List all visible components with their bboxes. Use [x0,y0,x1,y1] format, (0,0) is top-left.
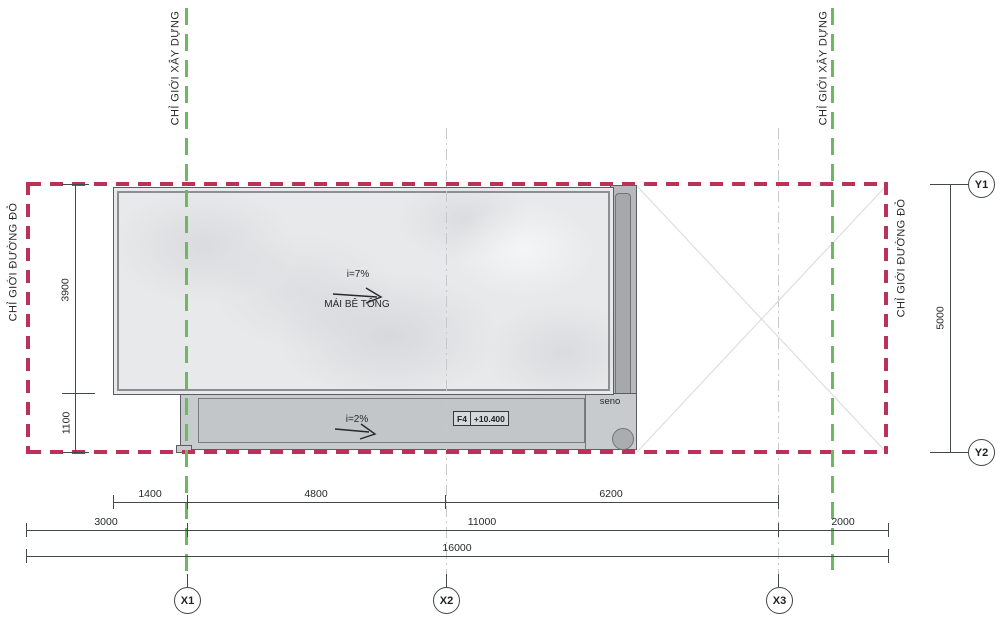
dim-label-16000: 16000 [427,542,487,554]
dim-tick [187,523,188,537]
dim-label-1400: 1400 [120,488,180,500]
grid-bubble-y2: Y2 [968,439,995,466]
gutter-label: seno [592,396,628,407]
construction-boundary-line-left [185,8,188,574]
dim-tick [778,495,779,509]
grid-connector-x3 [778,574,779,587]
grid-bubble-y1: Y1 [968,171,995,198]
level-value: +10.400 [471,412,508,425]
dim-line-left [75,184,76,453]
grid-line-x2 [446,128,447,574]
dim-tick [187,495,188,509]
dim-tick [445,495,446,509]
terrace-slab-inner [198,398,585,443]
dim-tick [778,523,779,537]
dim-label-6200: 6200 [581,488,641,500]
level-tag: F4 [454,412,471,425]
grid-bubble-x1: X1 [174,587,201,614]
slope-label-terrace: i=2% [335,414,379,425]
grid-bubble-x2: X2 [433,587,460,614]
slope-label-main: i=7% [336,269,380,280]
grid-connector-x2 [446,574,447,587]
dim-tick [26,523,27,537]
roof-plan-drawing: CHỈ GIỚI XÂY DỰNG CHỈ GIỚI XÂY DỰNG CHỈ … [0,0,1000,621]
roof-material-label: MÁI BÊ TÔNG [312,299,402,310]
grid-connector-x1 [187,574,188,587]
red-boundary-top [28,182,888,186]
red-boundary-right [884,182,888,454]
main-roof-slab [113,187,614,395]
dim-label-2000: 2000 [813,516,873,528]
dim-tick [930,184,968,185]
dim-tick [62,452,89,453]
dim-line-right [950,184,951,453]
dim-row2-line [26,530,888,531]
dim-label-11000: 11000 [452,516,512,528]
main-roof-slab-inner-edge [117,191,610,391]
red-boundary-bottom [28,450,888,454]
level-tag-box: F4 +10.400 [453,411,509,426]
dim-tick [62,184,89,185]
red-boundary-left [26,182,30,454]
dim-row3-line [26,556,888,557]
dim-tick [62,393,95,394]
dim-tick [888,523,889,537]
dim-tick [930,452,968,453]
grid-bubble-x3: X3 [766,587,793,614]
dim-label-4800: 4800 [286,488,346,500]
terrace-gutter-divider [585,393,586,450]
dim-tick [888,549,889,563]
dim-label-3000: 3000 [76,516,136,528]
dim-tick [113,495,114,509]
dim-tick [26,549,27,563]
construction-boundary-line-right [831,8,834,570]
roof-drain-icon [612,428,634,450]
